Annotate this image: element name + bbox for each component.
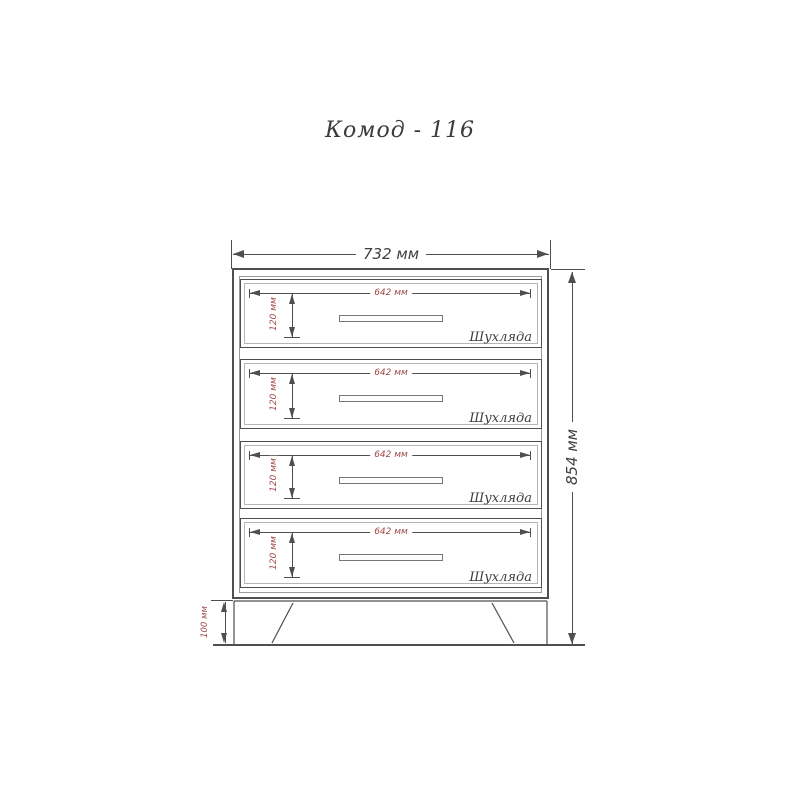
arrowhead-down-icon [289,488,295,498]
arrowhead-left-icon [250,290,260,296]
drawer-height-label: 120 мм [269,295,279,333]
arrowhead-right-icon [520,370,530,376]
dimension-tick [530,289,531,298]
dimension-tick [284,498,300,499]
drawer-handle [339,477,443,484]
drawer-width-label: 642 мм [370,288,412,298]
drawer-handle [339,315,443,322]
dimension-tick [284,337,300,338]
arrowhead-up-icon [289,374,295,384]
drawer-2: 642 мм 120 мм Шухляда [240,359,542,429]
plinth-height-label: 100 мм [200,604,210,640]
arrowhead-up-icon [221,602,227,612]
drawer-width-label: 642 мм [370,527,412,537]
dimension-tick [530,528,531,537]
extension-line [211,600,233,601]
arrowhead-left-icon [250,370,260,376]
dimension-tick [530,369,531,378]
arrowhead-left-icon [250,529,260,535]
arrowhead-down-icon [568,633,576,644]
drawer-1: 642 мм 120 мм Шухляда [240,279,542,348]
arrowhead-up-icon [289,294,295,304]
arrowhead-right-icon [520,452,530,458]
dimension-tick [530,451,531,460]
drawer-3: 642 мм 120 мм Шухляда [240,441,542,509]
arrowhead-up-icon [289,533,295,543]
drawer-name-label: Шухляда [469,570,532,585]
floor-line [213,644,585,646]
drawer-name-label: Шухляда [469,330,532,345]
arrowhead-right-icon [520,290,530,296]
extension-line-right [550,240,551,269]
drawing-canvas: Комод - 116 732 мм 642 мм 120 мм Шухляда [0,0,800,800]
arrowhead-up-icon [568,272,576,283]
arrowhead-down-icon [289,408,295,418]
drawer-width-label: 642 мм [370,368,412,378]
arrowhead-left-icon [233,250,244,258]
plinth-legs [210,599,590,647]
drawer-handle [339,395,443,402]
arrowhead-down-icon [289,567,295,577]
extension-line-left [231,240,232,269]
drawer-height-label: 120 мм [269,534,279,572]
drawer-name-label: Шухляда [469,411,532,426]
arrowhead-down-icon [221,633,227,643]
extension-line-top [551,269,585,270]
drawer-height-label: 120 мм [269,456,279,494]
drawer-width-label: 642 мм [370,450,412,460]
drawer-height-label: 120 мм [269,375,279,413]
width-dimension-label: 732 мм [356,245,426,263]
arrowhead-down-icon [289,327,295,337]
arrowhead-right-icon [520,529,530,535]
drawer-name-label: Шухляда [469,491,532,506]
drawer-handle [339,554,443,561]
drawing-title: Комод - 116 [0,118,800,143]
arrowhead-up-icon [289,456,295,466]
arrowhead-right-icon [537,250,548,258]
arrowhead-left-icon [250,452,260,458]
height-dimension-label: 854 мм [563,422,581,492]
dimension-tick [284,577,300,578]
drawer-4: 642 мм 120 мм Шухляда [240,518,542,588]
dimension-tick [284,418,300,419]
